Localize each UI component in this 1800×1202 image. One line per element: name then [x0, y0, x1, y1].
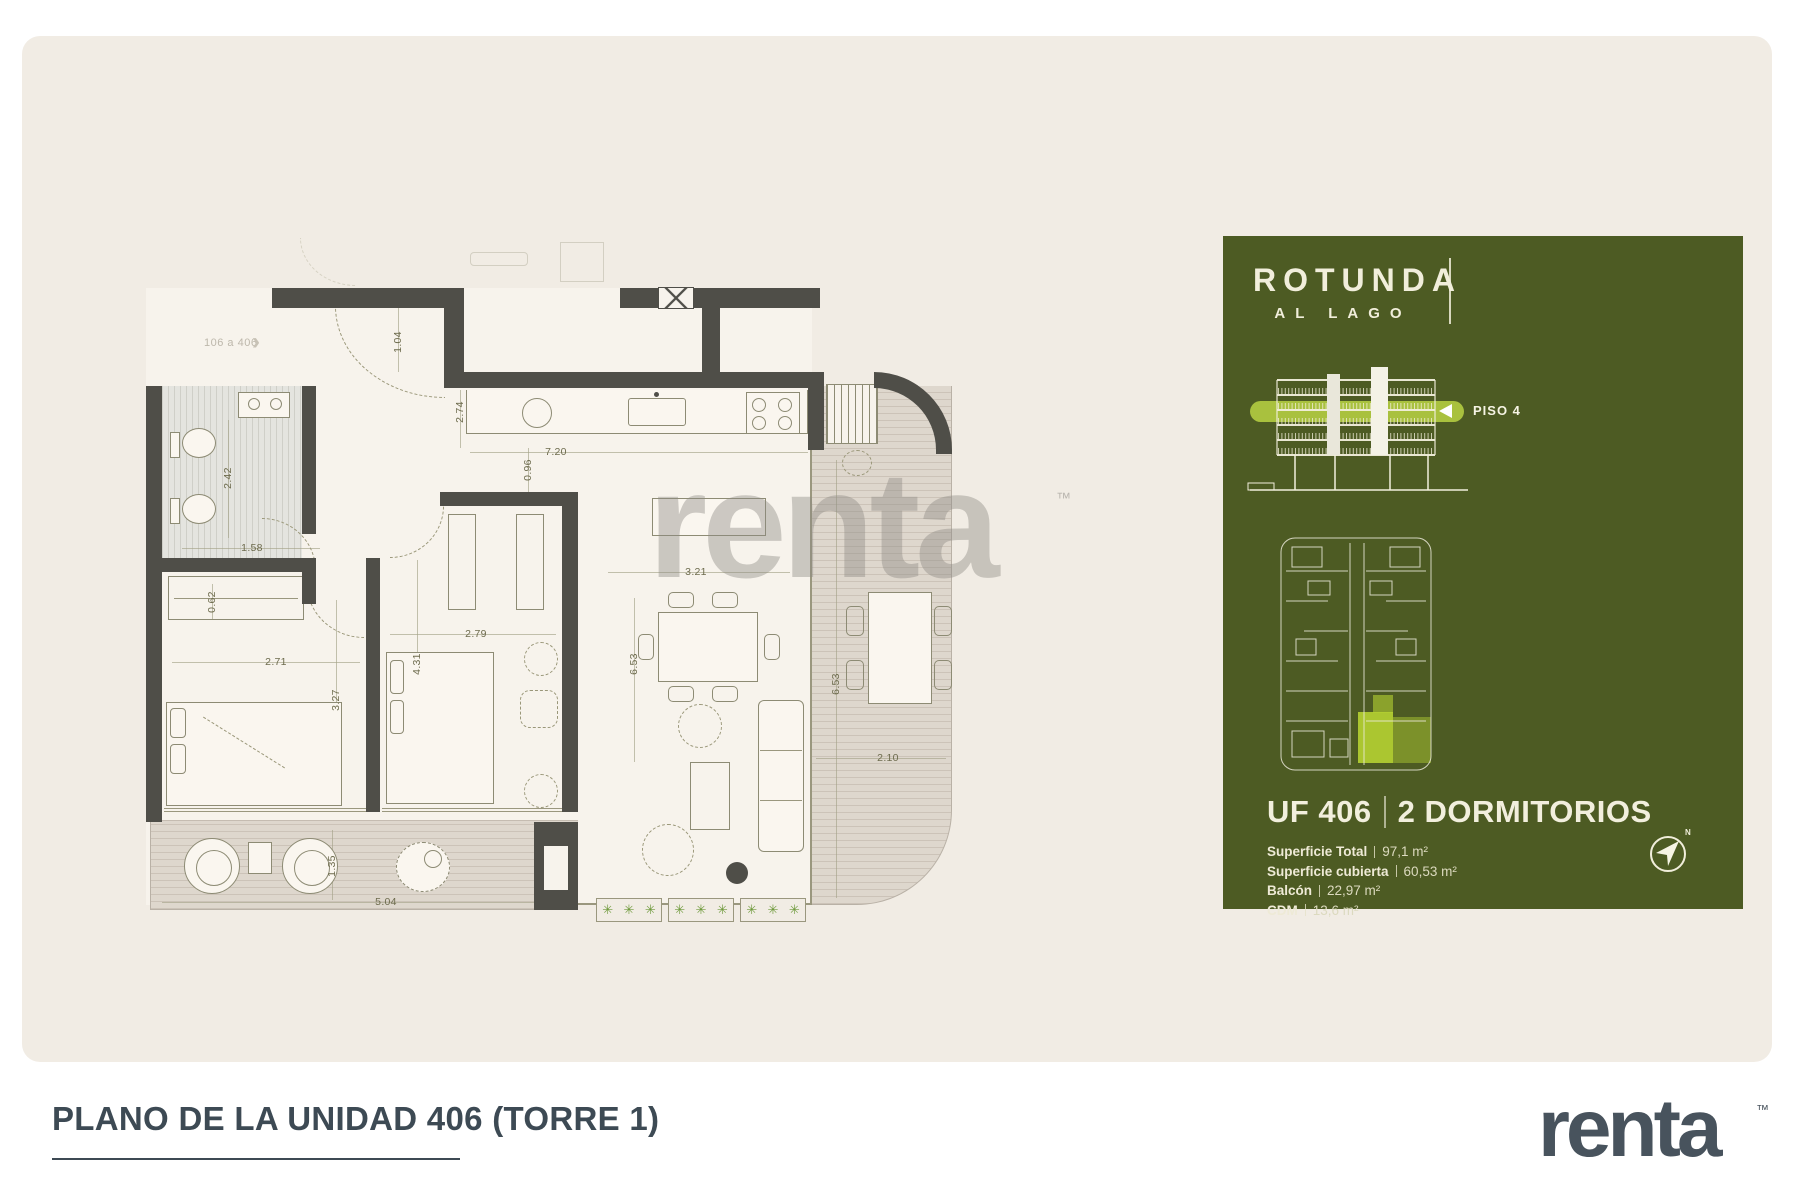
plant-icon: ✳ [746, 902, 757, 918]
wardrobe [448, 514, 476, 610]
sofa-cushion-line [760, 750, 802, 751]
pouf [678, 704, 722, 748]
toilet [170, 432, 180, 458]
louver-enclosure [826, 384, 878, 444]
spec-row: CDM 13,6 m² [1267, 901, 1457, 921]
plant-icon: ✳ [624, 902, 635, 918]
wall [366, 558, 380, 812]
bbq-inner [544, 846, 568, 890]
floor-badge: PISO 4 [1473, 403, 1521, 418]
renta-logo-tm: ™ [1756, 1102, 1769, 1117]
dimension-label: 6.53 [830, 673, 842, 695]
kitchen-basin [522, 398, 552, 428]
plant-icon: ✳ [645, 902, 656, 918]
pillow [390, 660, 404, 694]
unit-ref-label: 106 a 406 [204, 337, 257, 349]
floorplate-thumbnail [1278, 535, 1434, 773]
watermark-tm: ™ [1056, 490, 1071, 507]
planter-box: ✳✳✳ [668, 898, 734, 922]
unit-number: UF 406 [1267, 794, 1372, 830]
plant-icon: ✳ [717, 902, 728, 918]
dimension-label: 1.58 [241, 542, 263, 554]
sofa-cushion-line [760, 800, 802, 801]
outdoor-chair [846, 660, 864, 690]
renta-logo: renta [1538, 1082, 1719, 1176]
dimension-label: 2.74 [454, 401, 466, 423]
spec-separator [1374, 846, 1375, 858]
spec-separator [1396, 865, 1397, 877]
hanging-chair-detail [424, 850, 442, 868]
spec-row: Superficie cubierta 60,53 m² [1267, 862, 1457, 882]
page-title: PLANO DE LA UNIDAD 406 (TORRE 1) [52, 1100, 659, 1138]
rug [690, 762, 730, 830]
title-divider [1384, 796, 1386, 828]
console-item [270, 398, 282, 410]
neighbor-furniture [470, 252, 528, 266]
dimension-label: 4.31 [411, 653, 423, 675]
brand-divider [1449, 258, 1451, 324]
kitchen-sink [628, 398, 686, 426]
neighbor-furniture [560, 242, 604, 282]
pillow [170, 744, 186, 774]
deck-lounge-inner [294, 850, 330, 886]
wall [444, 288, 464, 388]
shaft-hatch [658, 287, 694, 309]
hanging-chair [396, 842, 450, 892]
plant-icon: ✳ [768, 902, 779, 918]
outdoor-chair [934, 660, 952, 690]
planter-box: ✳✳✳ [596, 898, 662, 922]
wall [302, 570, 316, 604]
spec-row: Balcón 22,97 m² [1267, 881, 1457, 901]
plant-icon: ✳ [674, 902, 685, 918]
plant-icon: ✳ [789, 902, 800, 918]
spec-separator [1319, 885, 1320, 897]
pillow [170, 708, 186, 738]
dimension-label: 1.04 [392, 331, 404, 353]
dimension-label: 2.71 [265, 656, 287, 668]
project-subtitle: AL LAGO [1253, 305, 1433, 322]
hall-console [238, 392, 290, 418]
dimension-label: 0.96 [522, 459, 534, 481]
wall [440, 492, 562, 506]
wall [620, 288, 820, 308]
burner [752, 416, 766, 430]
wall [702, 288, 720, 378]
plant-icon: ✳ [696, 902, 707, 918]
dimension-label: 1.35 [326, 855, 338, 877]
planter-box: ✳✳✳ [740, 898, 806, 922]
dining-table [658, 612, 758, 682]
spec-row: Superficie Total 97,1 m² [1267, 842, 1457, 862]
unit-title-row: UF 406 2 DORMITORIOS [1267, 794, 1652, 830]
info-panel: ROTUNDA AL LAGO PISO 4 [1223, 236, 1743, 909]
window-line [164, 808, 366, 812]
unit-type: 2 DORMITORIOS [1398, 794, 1652, 830]
armchair [520, 690, 558, 728]
desk-chair [524, 642, 558, 676]
window-line [382, 808, 562, 812]
console-item [248, 398, 260, 410]
toilet-bowl [182, 428, 216, 458]
unit-specs: Superficie Total 97,1 m² Superficie cubi… [1267, 842, 1457, 920]
wall [302, 386, 316, 534]
dimension-label: 3.27 [330, 689, 342, 711]
dining-chair [764, 634, 780, 660]
dimension-label: 5.04 [375, 896, 397, 908]
burner [778, 398, 792, 412]
chevron-right-icon: › [252, 328, 260, 356]
project-brand: ROTUNDA AL LAGO [1253, 262, 1433, 322]
burner [752, 398, 766, 412]
dimension-label: 2.79 [465, 628, 487, 640]
pouf [524, 774, 558, 808]
wall [146, 386, 162, 822]
building-elevation-icon [1240, 366, 1480, 501]
dining-chair [712, 686, 738, 702]
sofa [758, 700, 804, 852]
deck-lounge-inner [196, 850, 232, 886]
bidet-bowl [182, 494, 216, 524]
pillow [390, 700, 404, 734]
side-table [726, 862, 748, 884]
title-underline [52, 1158, 460, 1160]
deck-side-table [248, 842, 272, 874]
bidet [170, 498, 180, 524]
wall [562, 492, 578, 812]
wall [272, 288, 464, 308]
burner [778, 416, 792, 430]
wall [146, 558, 316, 572]
plant-icon: ✳ [602, 902, 613, 918]
dining-chair [638, 634, 654, 660]
neighbor-door-arc [300, 238, 356, 286]
dimension-label: 2.42 [222, 467, 234, 489]
project-name: ROTUNDA [1253, 262, 1433, 299]
wardrobe [516, 514, 544, 610]
wall [464, 372, 812, 388]
dimension-label: 0.62 [206, 591, 218, 613]
spec-separator [1305, 904, 1306, 916]
dimension-label: 7.20 [545, 446, 567, 458]
bed-1 [166, 702, 342, 806]
watermark: renta [648, 438, 995, 613]
lounge-chair [642, 824, 694, 876]
dining-chair [668, 686, 694, 702]
closet-rail [174, 598, 298, 599]
dimension-label: 6.53 [628, 653, 640, 675]
dimension-label: 2.10 [877, 752, 899, 764]
compass-n-label: N [1685, 828, 1691, 837]
kitchen-faucet [654, 392, 659, 397]
